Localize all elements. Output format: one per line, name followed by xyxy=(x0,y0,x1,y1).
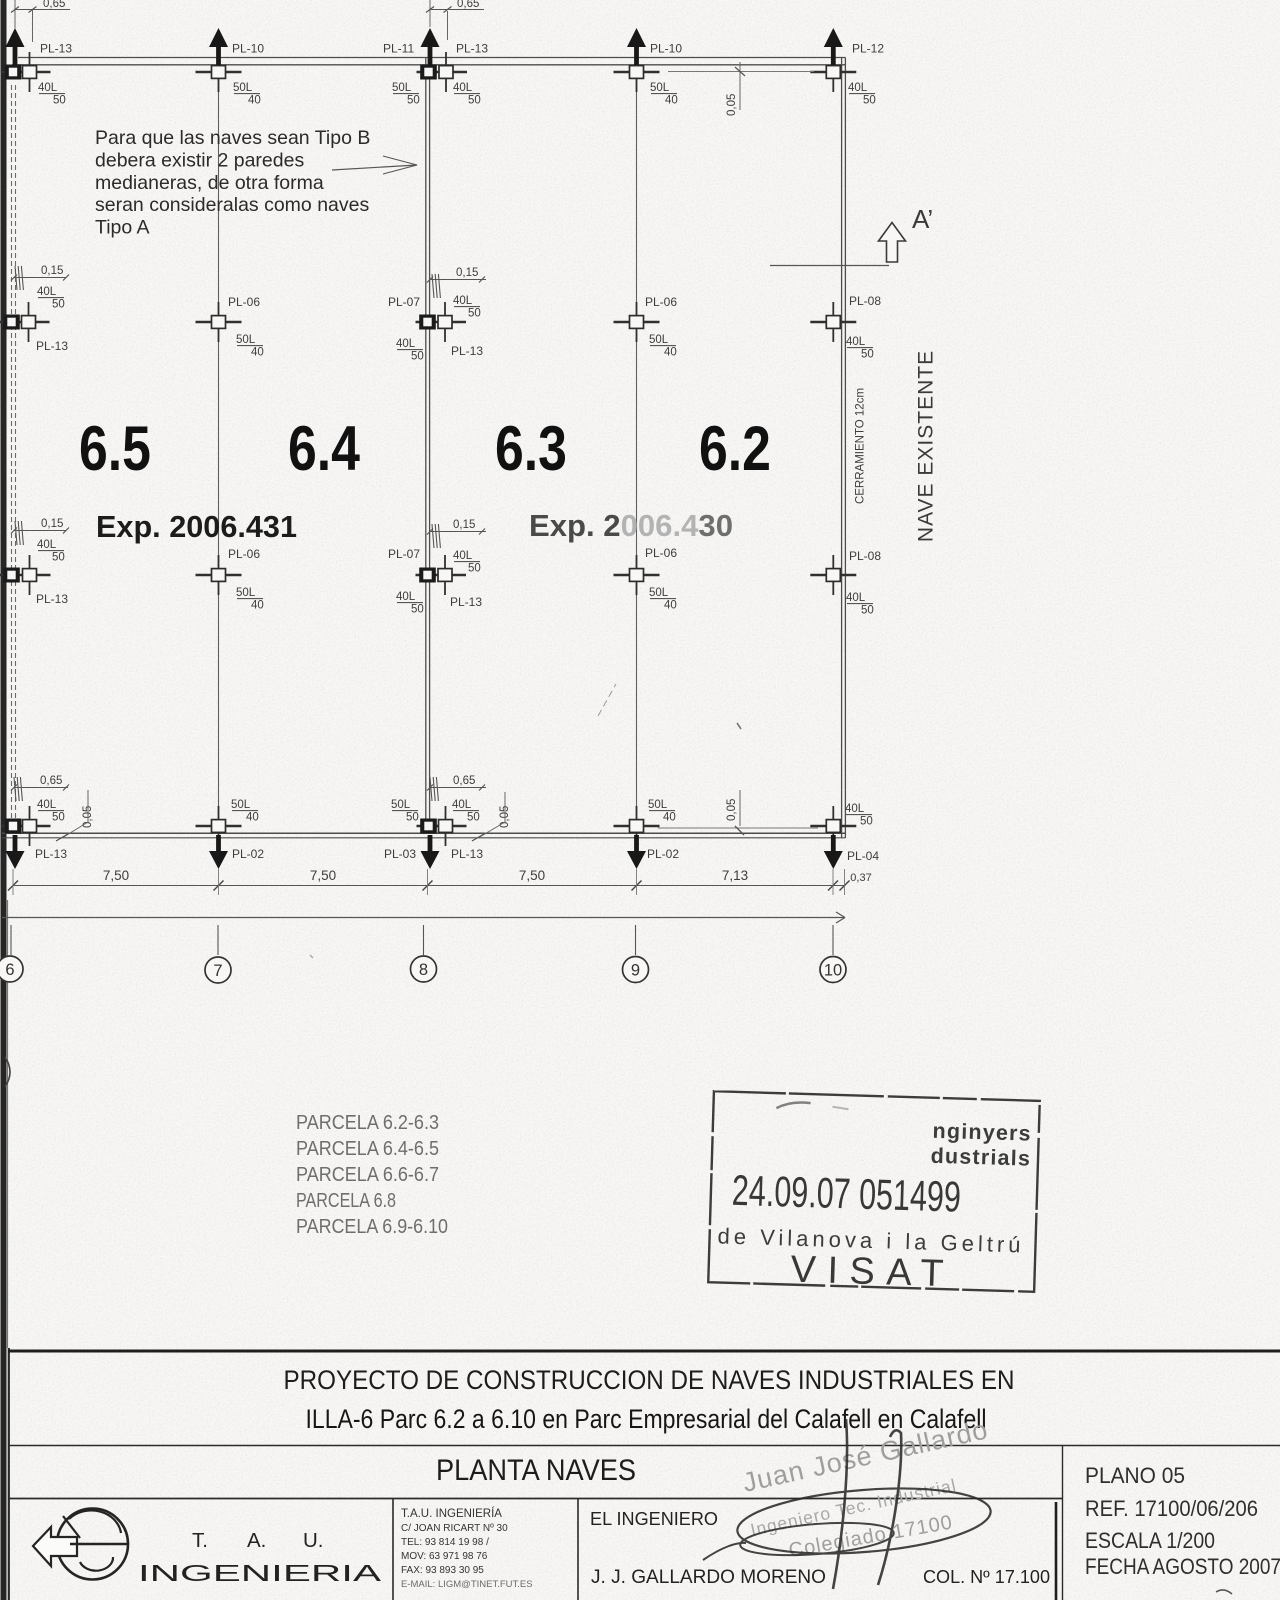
svg-text:ILLA-6 Parc 6.2 a 6.10 en Parc: ILLA-6 Parc 6.2 a 6.10 en Parc Empresari… xyxy=(306,1404,987,1434)
svg-text:FECHA AGOSTO 2007: FECHA AGOSTO 2007 xyxy=(1085,1554,1280,1579)
svg-text:0,65: 0,65 xyxy=(43,0,65,10)
svg-text:U.: U. xyxy=(303,1529,324,1552)
svg-text:PL-08: PL-08 xyxy=(849,294,881,308)
svg-text:PL-13: PL-13 xyxy=(451,847,483,861)
svg-text:50: 50 xyxy=(863,95,876,107)
svg-text:40: 40 xyxy=(665,95,678,107)
svg-text:50: 50 xyxy=(468,563,481,575)
svg-text:PL-13: PL-13 xyxy=(40,42,72,56)
svg-text:PL-07: PL-07 xyxy=(388,295,420,309)
svg-text:seran consideralas como naves: seran consideralas como naves xyxy=(95,194,369,216)
svg-text:8: 8 xyxy=(419,961,428,979)
svg-text:7,50: 7,50 xyxy=(103,868,129,883)
svg-text:0,15: 0,15 xyxy=(453,519,475,531)
svg-text:7: 7 xyxy=(213,962,222,980)
svg-text:40L: 40L xyxy=(396,591,416,603)
svg-text:40L: 40L xyxy=(396,338,416,350)
svg-text:PL-02: PL-02 xyxy=(232,847,264,861)
svg-text:CERRAMIENTO 12cm: CERRAMIENTO 12cm xyxy=(855,388,867,504)
svg-text:50: 50 xyxy=(861,605,874,617)
svg-text:40: 40 xyxy=(663,812,676,824)
svg-text:9: 9 xyxy=(631,962,640,980)
svg-text:medianeras, de otra forma: medianeras, de otra forma xyxy=(95,172,324,194)
svg-text:PL-13: PL-13 xyxy=(451,344,483,358)
svg-text:40L: 40L xyxy=(38,82,58,94)
svg-text:6.4: 6.4 xyxy=(288,414,360,484)
svg-text:40L: 40L xyxy=(453,295,473,307)
svg-text:0,65: 0,65 xyxy=(457,0,479,10)
svg-text:40: 40 xyxy=(664,347,677,359)
svg-text:40L: 40L xyxy=(848,82,868,94)
svg-text:50: 50 xyxy=(468,95,481,107)
svg-text:PARCELA 6.8: PARCELA 6.8 xyxy=(296,1190,396,1212)
svg-text:E-MAIL: LIGM@TINET.FUT.ES: E-MAIL: LIGM@TINET.FUT.ES xyxy=(401,1579,533,1590)
svg-text:50: 50 xyxy=(53,95,66,107)
svg-text:50L: 50L xyxy=(231,799,251,811)
svg-text:50L: 50L xyxy=(236,334,256,346)
svg-text:PLANTA NAVES: PLANTA NAVES xyxy=(436,1454,636,1487)
svg-text:MOV: 63 971 98 76: MOV: 63 971 98 76 xyxy=(401,1551,488,1562)
svg-text:PL-10: PL-10 xyxy=(232,42,264,56)
svg-text:7,50: 7,50 xyxy=(519,868,545,883)
svg-text:PL-11: PL-11 xyxy=(383,42,414,56)
svg-text:40L: 40L xyxy=(845,803,865,815)
svg-text:50L: 50L xyxy=(236,587,256,599)
svg-text:50: 50 xyxy=(52,812,65,824)
svg-text:40L: 40L xyxy=(453,550,473,562)
svg-text:40: 40 xyxy=(251,347,264,359)
svg-text:50: 50 xyxy=(406,812,419,824)
svg-text:PL-13: PL-13 xyxy=(35,847,67,861)
svg-text:Para que las naves sean Tipo B: Para que las naves sean Tipo B xyxy=(95,127,370,149)
svg-text:PL-13: PL-13 xyxy=(36,339,68,353)
svg-text:0,65: 0,65 xyxy=(453,775,475,787)
svg-text:PLANO 05: PLANO 05 xyxy=(1085,1463,1185,1488)
svg-text:Tipo A: Tipo A xyxy=(95,217,150,239)
svg-text:40L: 40L xyxy=(452,799,472,811)
svg-text:50: 50 xyxy=(411,351,424,363)
svg-text:PL-07: PL-07 xyxy=(388,547,420,561)
svg-text:COL. Nº 17.100: COL. Nº 17.100 xyxy=(923,1567,1050,1587)
svg-text:PL-06: PL-06 xyxy=(645,295,677,309)
svg-text:A’: A’ xyxy=(912,204,933,234)
svg-text:PL-02: PL-02 xyxy=(647,847,679,861)
svg-text:40: 40 xyxy=(248,95,261,107)
svg-text:PL-04: PL-04 xyxy=(847,849,879,863)
svg-text:PL-08: PL-08 xyxy=(849,549,881,563)
svg-text:PROYECTO DE CONSTRUCCION DE NA: PROYECTO DE CONSTRUCCION DE NAVES INDUST… xyxy=(284,1365,1015,1395)
svg-text:PL-13: PL-13 xyxy=(456,42,488,56)
svg-text:0,15: 0,15 xyxy=(41,265,63,277)
svg-text:50: 50 xyxy=(52,299,65,311)
svg-text:50: 50 xyxy=(860,816,873,828)
svg-text:6.2: 6.2 xyxy=(699,414,771,484)
svg-text:6: 6 xyxy=(5,961,14,979)
svg-text:INGENIERIA: INGENIERIA xyxy=(138,1560,382,1586)
svg-text:PARCELA 6.2-6.3: PARCELA 6.2-6.3 xyxy=(296,1112,439,1134)
svg-text:10: 10 xyxy=(824,962,842,980)
svg-text:PL-12: PL-12 xyxy=(852,42,884,56)
svg-text:50L: 50L xyxy=(650,82,670,94)
svg-text:50: 50 xyxy=(861,349,874,361)
svg-text:debera existir 2 paredes: debera existir 2 paredes xyxy=(95,149,304,171)
svg-text:0,15: 0,15 xyxy=(456,267,478,279)
svg-text:40: 40 xyxy=(664,600,677,612)
svg-text:PL-06: PL-06 xyxy=(645,546,677,560)
svg-text:7,13: 7,13 xyxy=(722,868,748,883)
svg-text:40: 40 xyxy=(246,812,259,824)
svg-text:NAVE EXISTENTE: NAVE EXISTENTE xyxy=(915,350,938,542)
svg-text:7,50: 7,50 xyxy=(310,868,336,883)
svg-text:50L: 50L xyxy=(648,799,668,811)
svg-text:PARCELA 6.4-6.5: PARCELA 6.4-6.5 xyxy=(296,1138,439,1160)
svg-text:T.A.U. INGENIERÍA: T.A.U. INGENIERÍA xyxy=(401,1507,502,1520)
svg-text:50: 50 xyxy=(52,552,65,564)
svg-text:PL-13: PL-13 xyxy=(450,595,482,609)
svg-text:J. J. GALLARDO MORENO: J. J. GALLARDO MORENO xyxy=(591,1567,826,1588)
svg-text:50L: 50L xyxy=(649,587,669,599)
svg-text:Exp. 2006.431: Exp. 2006.431 xyxy=(96,509,297,544)
svg-text:40L: 40L xyxy=(37,286,57,298)
svg-text:6.3: 6.3 xyxy=(495,414,567,484)
svg-text:TEL: 93 814 19 98 /: TEL: 93 814 19 98 / xyxy=(401,1537,489,1548)
svg-text:VISAT: VISAT xyxy=(790,1249,944,1296)
svg-text:50: 50 xyxy=(468,308,481,320)
svg-text:0,05: 0,05 xyxy=(726,799,738,821)
svg-text:dustrials: dustrials xyxy=(930,1144,1031,1171)
svg-text:50L: 50L xyxy=(392,82,412,94)
svg-text:40L: 40L xyxy=(846,336,866,348)
svg-text:50L: 50L xyxy=(391,799,411,811)
svg-text:nginyers: nginyers xyxy=(932,1119,1032,1146)
svg-text:24.09.07 051499: 24.09.07 051499 xyxy=(731,1167,961,1222)
svg-text:40L: 40L xyxy=(37,539,57,551)
svg-text:PL-10: PL-10 xyxy=(650,42,682,56)
svg-text:40L: 40L xyxy=(846,592,866,604)
svg-text:50L: 50L xyxy=(233,82,253,94)
svg-text:0,37: 0,37 xyxy=(850,872,871,884)
svg-text:PARCELA 6.6-6.7: PARCELA 6.6-6.7 xyxy=(296,1164,439,1186)
svg-text:PL-03: PL-03 xyxy=(384,847,416,861)
svg-text:40L: 40L xyxy=(453,82,473,94)
svg-text:FAX: 93 893 30 95: FAX: 93 893 30 95 xyxy=(401,1565,484,1576)
svg-text:C/ JOAN RICART Nº 30: C/ JOAN RICART Nº 30 xyxy=(401,1523,508,1534)
svg-text:A.: A. xyxy=(247,1529,266,1552)
svg-text:PARCELA 6.9-6.10: PARCELA 6.9-6.10 xyxy=(296,1216,448,1238)
svg-text:50L: 50L xyxy=(649,334,669,346)
svg-text:0,65: 0,65 xyxy=(40,775,62,787)
svg-text:40L: 40L xyxy=(37,799,57,811)
svg-text:0,05: 0,05 xyxy=(726,94,738,116)
svg-text:T.: T. xyxy=(192,1529,208,1552)
svg-text:PL-13: PL-13 xyxy=(36,592,68,606)
svg-text:40: 40 xyxy=(251,600,264,612)
svg-text:50: 50 xyxy=(467,812,480,824)
svg-text:50: 50 xyxy=(411,604,424,616)
svg-text:ESCALA 1/200: ESCALA 1/200 xyxy=(1085,1528,1215,1553)
svg-text:50: 50 xyxy=(407,95,420,107)
svg-text:REF. 17100/06/206: REF. 17100/06/206 xyxy=(1085,1496,1258,1521)
svg-text:PL-06: PL-06 xyxy=(228,295,260,309)
svg-text:EL INGENIERO: EL INGENIERO xyxy=(590,1509,718,1529)
svg-text:Exp. 2006.430: Exp. 2006.430 xyxy=(529,508,733,543)
svg-text:0,15: 0,15 xyxy=(41,518,63,530)
svg-text:PL-06: PL-06 xyxy=(228,547,260,561)
svg-text:6.5: 6.5 xyxy=(79,414,151,484)
